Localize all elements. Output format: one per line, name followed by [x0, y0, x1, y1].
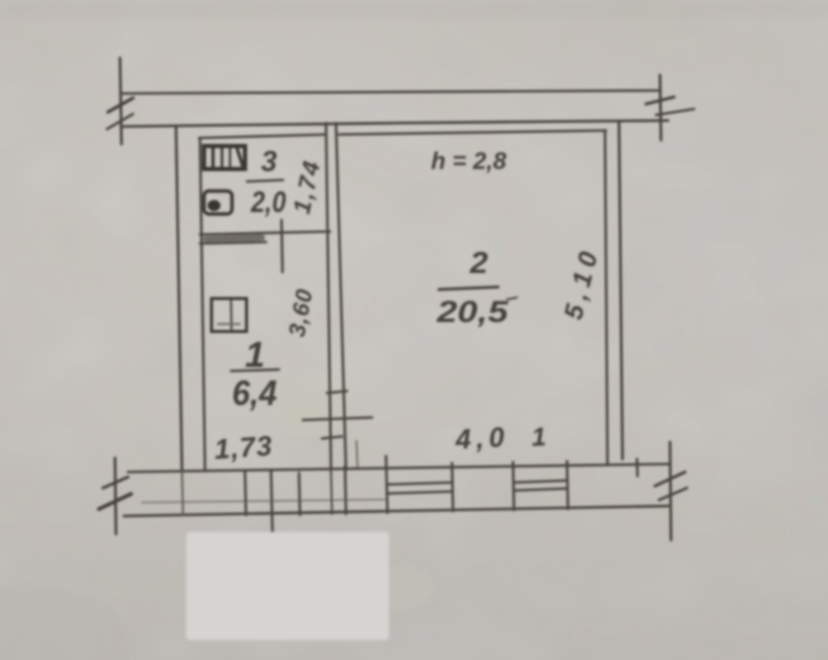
svg-text:2: 2: [469, 245, 488, 280]
svg-text:1: 1: [531, 421, 547, 452]
svg-text:1: 1: [245, 334, 265, 375]
svg-text:4,0: 4,0: [454, 421, 510, 455]
svg-text:h = 2,8: h = 2,8: [431, 148, 507, 175]
svg-text:6,4: 6,4: [232, 374, 277, 413]
svg-text:3: 3: [261, 146, 277, 178]
svg-text:2,0: 2,0: [250, 186, 286, 219]
svg-text:20,5: 20,5: [436, 294, 509, 329]
svg-text:1,73: 1,73: [213, 430, 274, 465]
